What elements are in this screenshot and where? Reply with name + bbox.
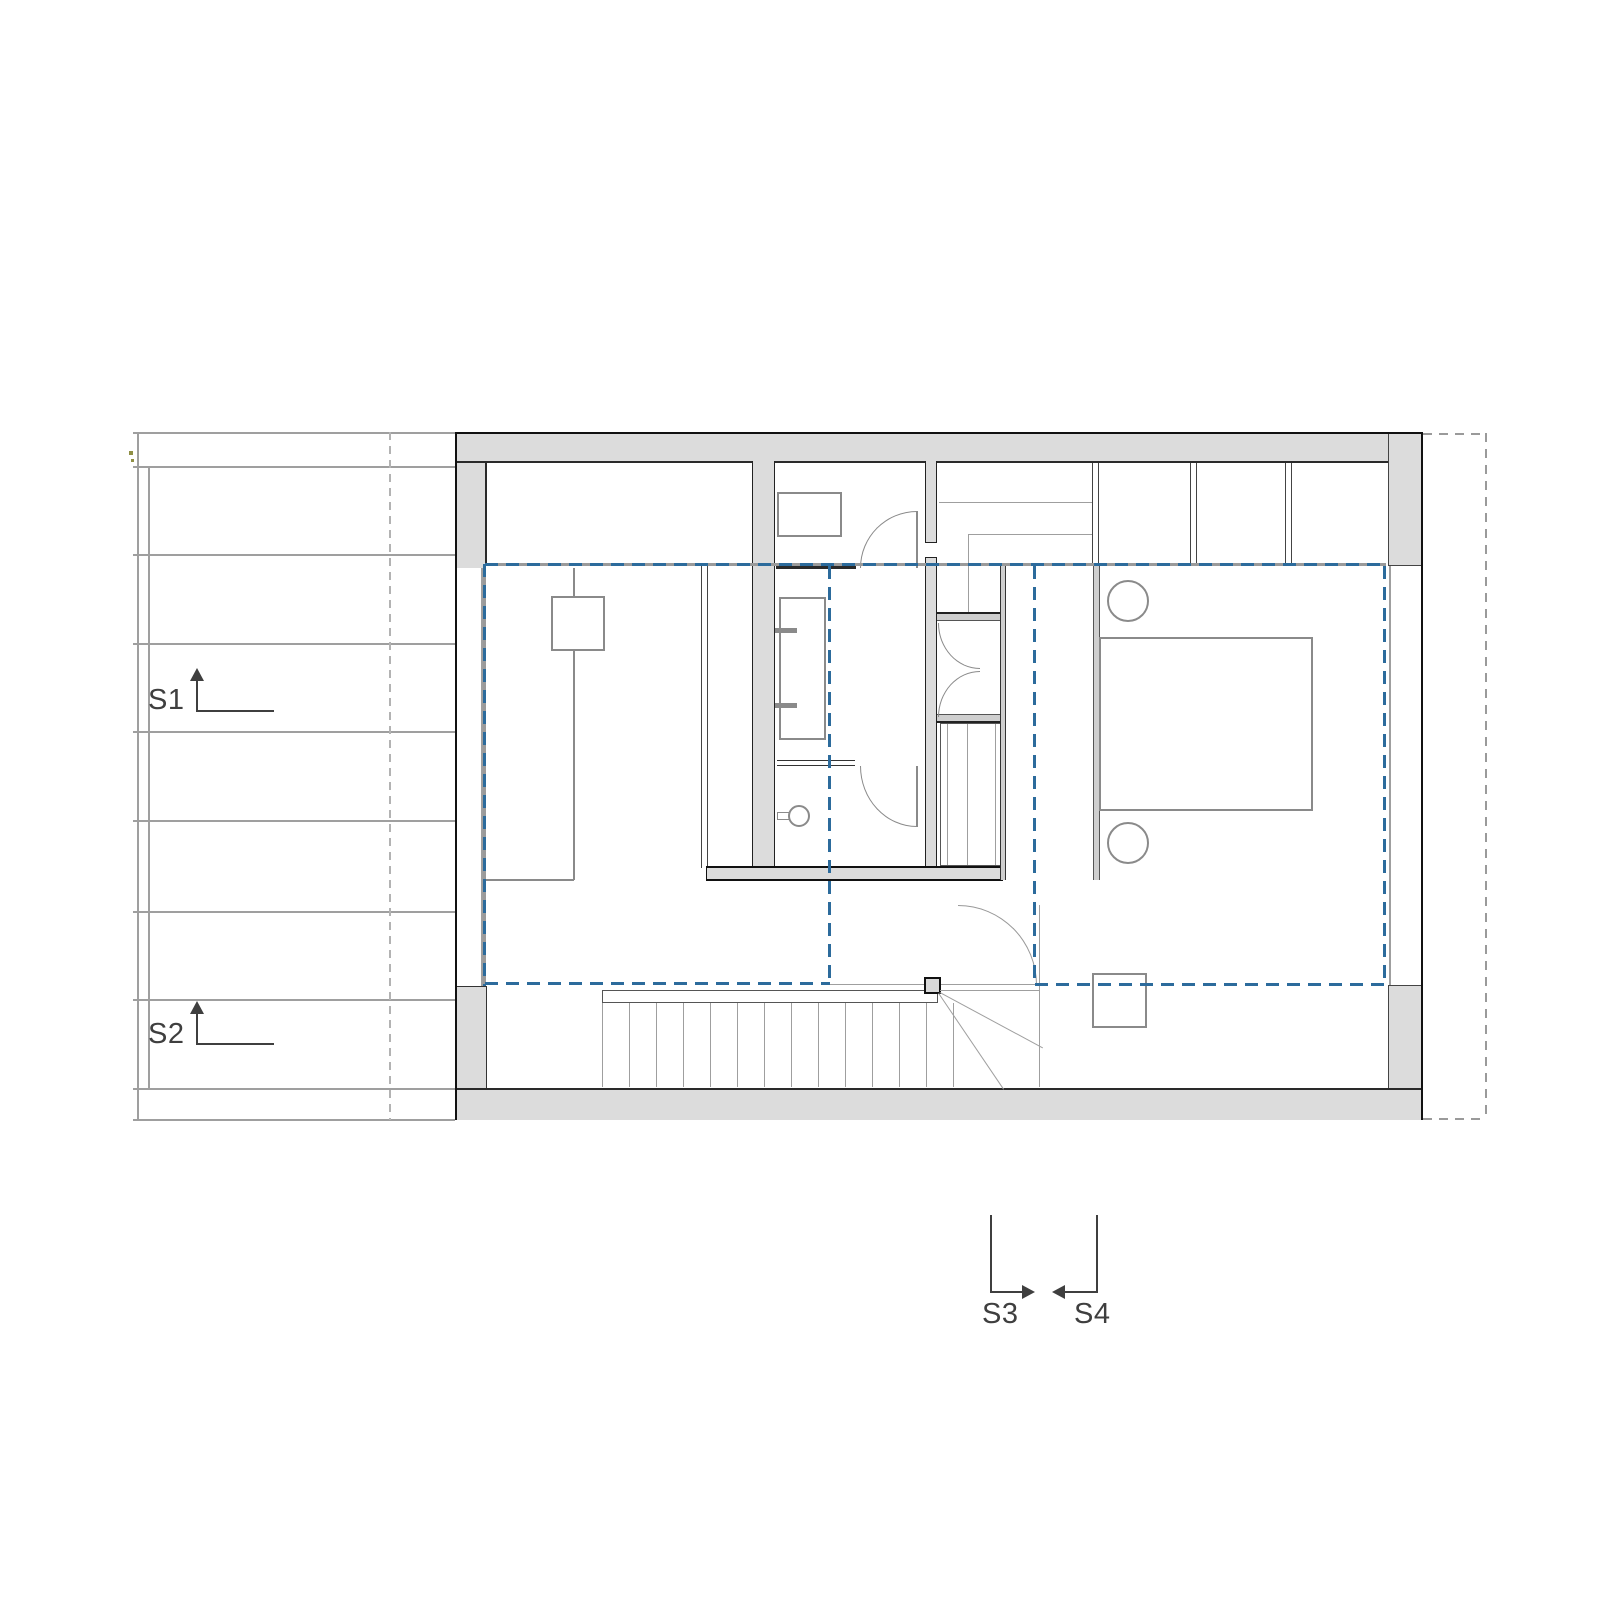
section-marker-s4-label: S4: [1074, 1298, 1110, 1331]
section-marker-s3-arrowhead: [1022, 1285, 1035, 1299]
section-marker-s4-line-vertical: [1096, 1215, 1098, 1293]
section-marker-s2-line-horizontal: [196, 1043, 274, 1045]
section-marker-s2-line-vertical: [196, 1012, 198, 1045]
section-marker-s3-line-vertical: [990, 1215, 992, 1293]
section-marker-s4-arrowhead: [1052, 1285, 1065, 1299]
section-marker-s3-line-horizontal: [990, 1291, 1023, 1293]
section-marker-s1-label: S1: [148, 684, 184, 717]
section-markers: S1 S2 S3 S4: [0, 0, 1612, 1612]
section-marker-s4-line-horizontal: [1065, 1291, 1098, 1293]
section-marker-s2-label: S2: [148, 1018, 184, 1051]
section-marker-s1-line-vertical: [196, 679, 198, 712]
section-marker-s3-label: S3: [982, 1298, 1018, 1331]
floor-plan-canvas: S1 S2 S3 S4: [0, 0, 1612, 1612]
section-marker-s1-line-horizontal: [196, 710, 274, 712]
